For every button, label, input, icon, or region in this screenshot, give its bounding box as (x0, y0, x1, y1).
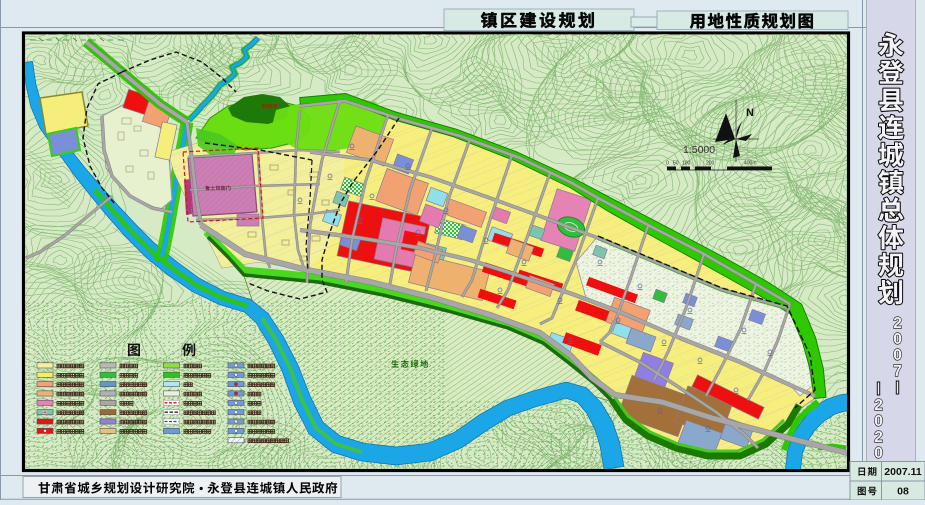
svg-text:400m: 400m (744, 161, 757, 167)
svg-text:0: 0 (893, 347, 902, 364)
svg-text:0: 0 (893, 331, 902, 348)
svg-text:0: 0 (874, 445, 883, 462)
svg-text:200: 200 (706, 161, 715, 167)
svg-text:0: 0 (874, 413, 883, 430)
svg-text:0: 0 (666, 161, 669, 167)
svg-text:2: 2 (893, 315, 902, 332)
svg-text:08: 08 (897, 486, 909, 498)
svg-text:N: N (746, 107, 754, 119)
svg-text:100: 100 (682, 161, 691, 167)
svg-text:50: 50 (673, 161, 679, 167)
svg-text:2: 2 (874, 397, 883, 414)
svg-text:2007.11: 2007.11 (884, 466, 922, 478)
svg-text:2: 2 (874, 429, 883, 446)
svg-text:7: 7 (893, 363, 902, 380)
svg-text:1:5000: 1:5000 (683, 144, 715, 156)
